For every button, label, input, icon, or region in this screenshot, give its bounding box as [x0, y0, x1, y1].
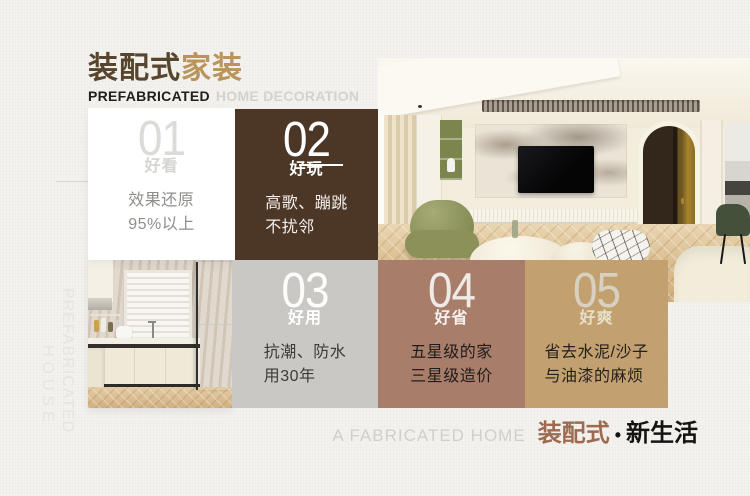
card-text-line1: 省去水泥/沙子	[545, 344, 649, 361]
kitchen-photo	[88, 258, 232, 408]
card-label: 好爽	[525, 304, 668, 328]
title-brown-part: 装配式	[88, 52, 181, 85]
card-text-line1: 五星级的家	[410, 344, 493, 361]
tagline-brand: 装配式	[538, 413, 610, 448]
card-text-line2: 95%以上	[128, 216, 195, 233]
feature-card-04: 04 好省 五星级的家三星级造价	[378, 260, 525, 408]
patterned-pouf	[592, 230, 650, 264]
title-tan-part: 家装	[181, 52, 243, 85]
bottle	[101, 318, 106, 332]
dining-chair	[716, 204, 750, 236]
page-title: 装配式家装	[88, 52, 359, 85]
side-vertical-text-line1: PREFABRICATED	[58, 288, 76, 433]
range-hood	[88, 298, 112, 310]
decorative-line	[56, 181, 90, 182]
figurine	[447, 158, 455, 172]
tv-screen	[518, 146, 594, 193]
card-label: 好玩	[235, 155, 378, 179]
page-subtitle: PREFABRICATEDHOME DECORATION	[88, 88, 359, 104]
bottle	[108, 322, 113, 332]
feature-card-05: 05 好爽 省去水泥/沙子与油漆的麻烦	[525, 260, 668, 408]
wood-floor-grain	[88, 387, 232, 408]
tagline-dot: •	[615, 425, 621, 446]
feature-card-02: 02 好玩 高歌、蹦跳不扰邻	[235, 109, 378, 260]
card-label: 好看	[88, 152, 235, 176]
card-text-line2: 用30年	[264, 368, 316, 385]
kitchen-window-blinds	[124, 270, 192, 340]
card-text: 五星级的家三星级造价	[378, 341, 525, 389]
refrigerator	[196, 262, 232, 390]
card-text: 效果还原95%以上	[88, 189, 235, 237]
card-text: 省去水泥/沙子与油漆的麻烦	[525, 341, 668, 389]
card-label: 好省	[378, 304, 525, 328]
card-label: 好用	[232, 304, 378, 328]
subtitle-dark-part: PREFABRICATED	[88, 88, 210, 104]
tagline-suffix: 新生活	[626, 413, 698, 448]
card-text-line2: 与油漆的麻烦	[545, 368, 644, 385]
door-knob	[681, 198, 684, 204]
feature-card-03: 03 好用 抗潮、防水用30年	[232, 260, 378, 408]
card-text-line1: 效果还原	[128, 192, 194, 209]
faucet-spout	[148, 321, 156, 323]
side-vertical-text-line2: HOUSE	[38, 345, 56, 427]
upper-cabinet	[88, 258, 114, 302]
card-text: 高歌、蹦跳不扰邻	[235, 192, 378, 240]
subtitle-light-part: HOME DECORATION	[216, 88, 359, 104]
card-text-line2: 不扰邻	[265, 219, 315, 236]
downlight	[418, 105, 422, 108]
faucet	[152, 322, 154, 338]
card-text-line2: 三星级造价	[410, 368, 493, 385]
white-sofa	[674, 246, 750, 302]
footer-tagline: A FABRICATED HOME 装配式 • 新生活	[332, 413, 698, 448]
feature-card-01: 01 好看 效果还原95%以上	[88, 108, 235, 260]
ac-vent	[482, 100, 700, 112]
card-text-line1: 高歌、蹦跳	[265, 195, 348, 212]
card-text-line1: 抗潮、防水	[264, 344, 347, 361]
prefab-home-poster: 装配式家装 PREFABRICATEDHOME DECORATION PREFA…	[0, 0, 750, 496]
green-armchair-seat	[405, 230, 479, 258]
vase	[512, 220, 518, 238]
lower-cabinets	[104, 348, 200, 384]
bottle	[94, 320, 99, 332]
card-text: 抗潮、防水用30年	[232, 341, 378, 389]
tv-console	[470, 209, 638, 222]
tagline-english: A FABRICATED HOME	[332, 426, 525, 446]
rice-cooker	[116, 326, 132, 338]
header: 装配式家装 PREFABRICATEDHOME DECORATION	[88, 52, 359, 104]
